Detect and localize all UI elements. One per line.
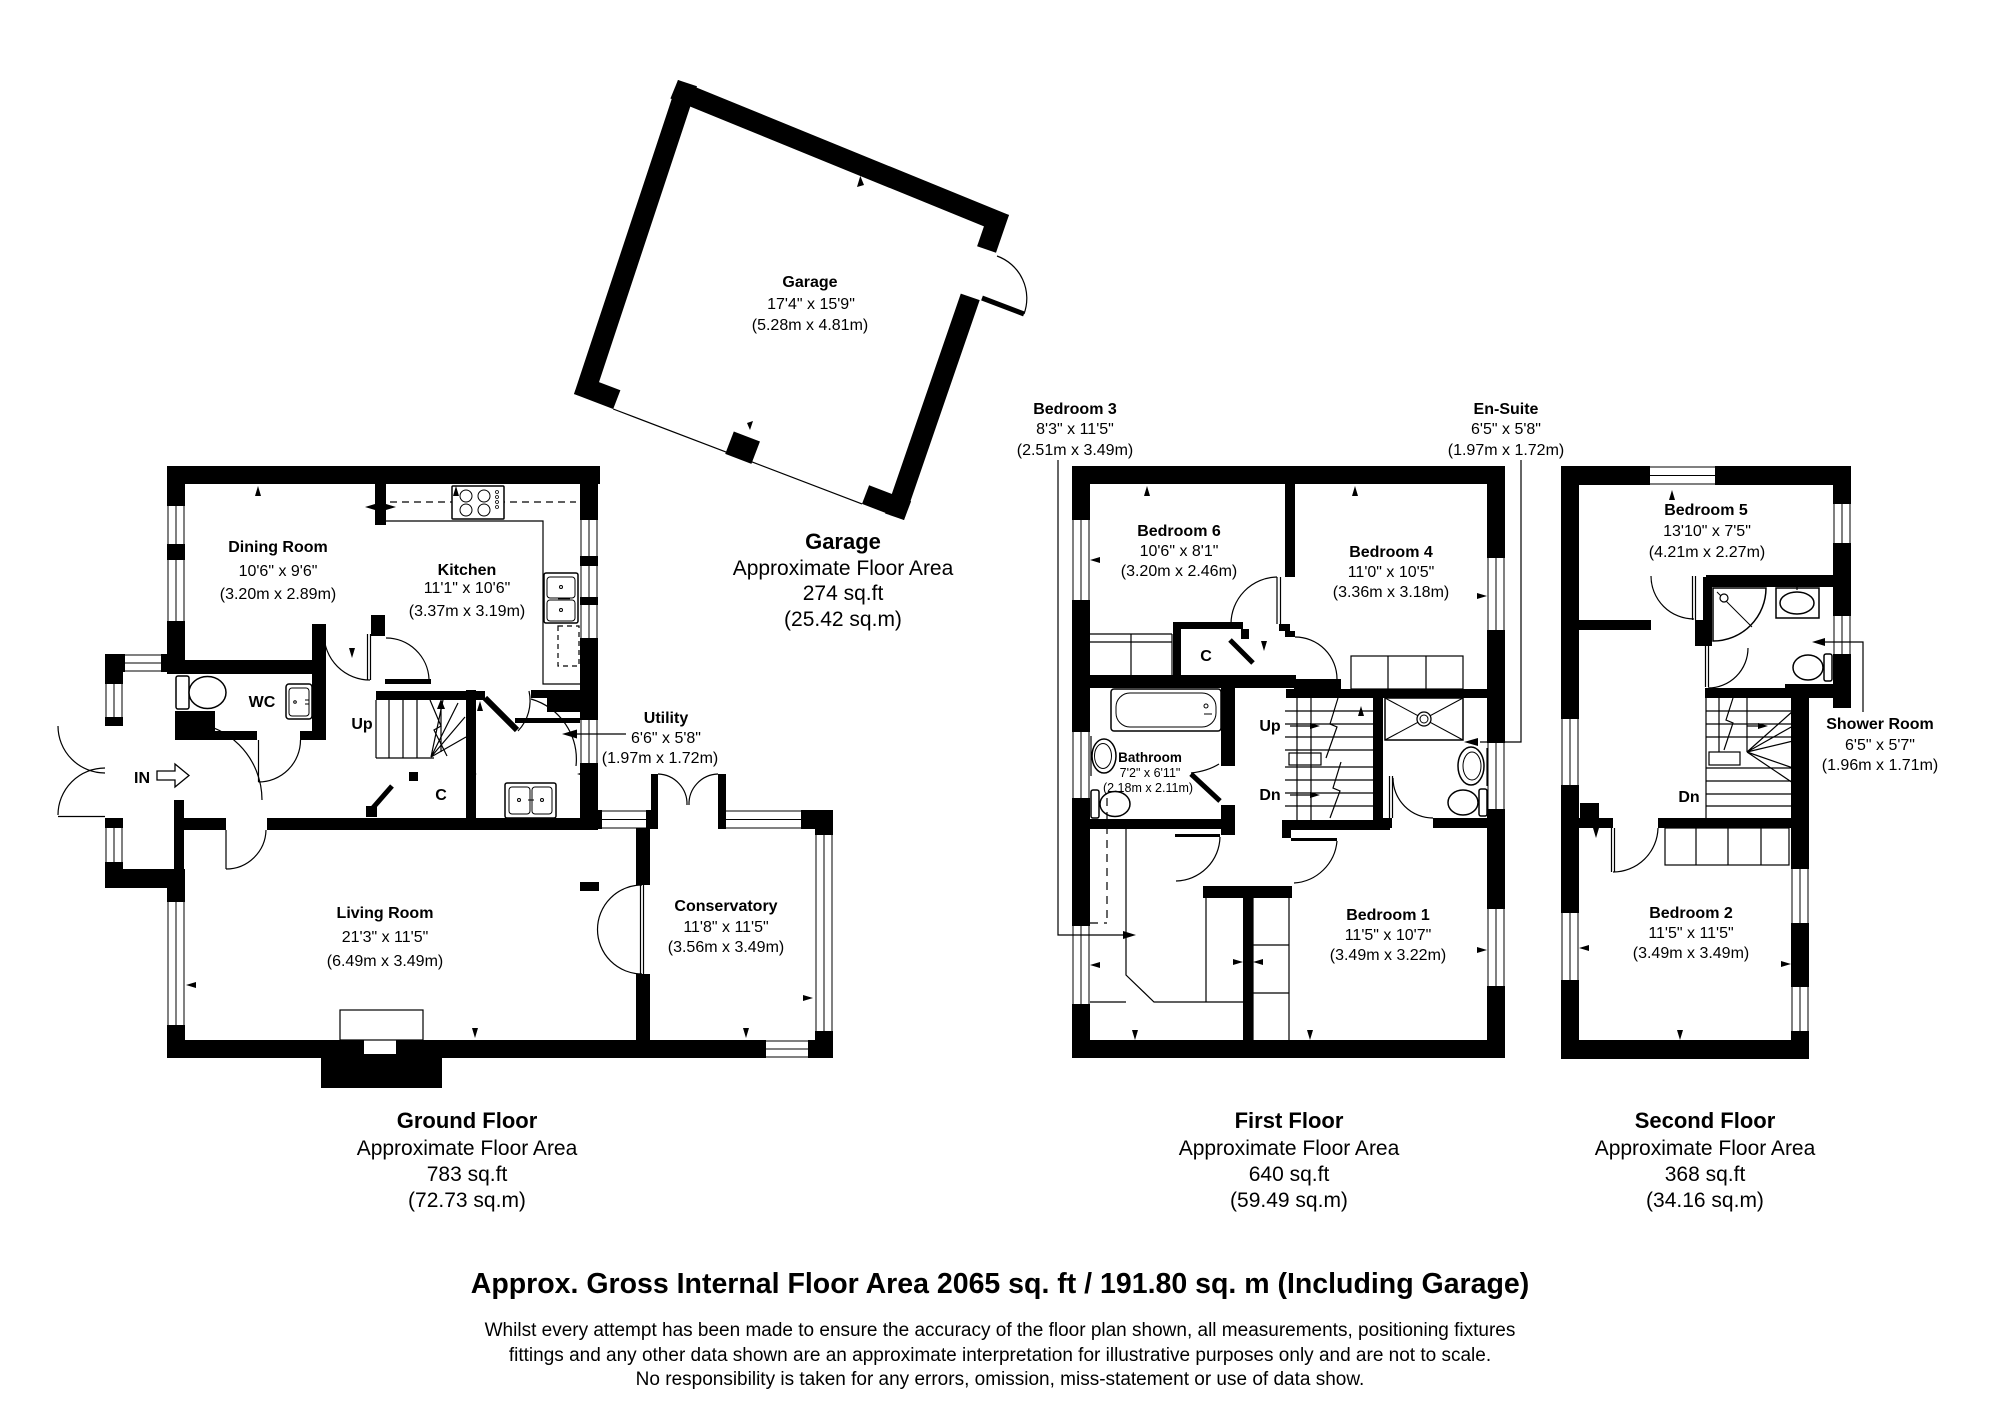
svg-text:(34.16 sq.m): (34.16 sq.m) <box>1646 1189 1764 1212</box>
svg-text:(6.49m x 3.49m): (6.49m x 3.49m) <box>327 953 443 970</box>
svg-text:(2.18m x 2.11m): (2.18m x 2.11m) <box>1103 781 1193 795</box>
svg-text:(1.97m x 1.72m): (1.97m x 1.72m) <box>1448 442 1564 459</box>
svg-text:(3.37m x 3.19m): (3.37m x 3.19m) <box>409 603 525 620</box>
svg-text:Dn: Dn <box>1259 787 1280 804</box>
svg-text:Approximate Floor Area: Approximate Floor Area <box>1179 1137 1400 1160</box>
svg-text:(3.49m x 3.22m): (3.49m x 3.22m) <box>1330 947 1446 964</box>
svg-text:Shower Room: Shower Room <box>1826 716 1934 733</box>
svg-text:17'4" x 15'9": 17'4" x 15'9" <box>767 296 855 313</box>
svg-text:(2.51m x 3.49m): (2.51m x 3.49m) <box>1017 442 1133 459</box>
svg-text:IN: IN <box>134 770 150 787</box>
svg-text:Approximate Floor Area: Approximate Floor Area <box>357 1137 578 1160</box>
svg-text:11'5" x 10'7": 11'5" x 10'7" <box>1345 927 1432 944</box>
svg-text:(3.56m x 3.49m): (3.56m x 3.49m) <box>668 939 784 956</box>
svg-text:Bedroom 3: Bedroom 3 <box>1033 401 1117 418</box>
svg-text:Utility: Utility <box>644 710 689 727</box>
svg-text:(25.42 sq.m): (25.42 sq.m) <box>784 608 902 631</box>
svg-text:Approx. Gross Internal Floor A: Approx. Gross Internal Floor Area 2065 s… <box>471 1268 1529 1300</box>
svg-text:Ground Floor: Ground Floor <box>397 1108 538 1133</box>
svg-text:(59.49 sq.m): (59.49 sq.m) <box>1230 1189 1348 1212</box>
svg-text:Up: Up <box>351 716 373 733</box>
svg-text:Approximate Floor Area: Approximate Floor Area <box>1595 1137 1816 1160</box>
svg-text:Second Floor: Second Floor <box>1635 1108 1776 1133</box>
svg-text:7'2" x 6'11": 7'2" x 6'11" <box>1120 766 1181 780</box>
svg-text:Bedroom 5: Bedroom 5 <box>1664 502 1748 519</box>
svg-text:Kitchen: Kitchen <box>438 562 497 579</box>
svg-text:Living Room: Living Room <box>337 905 434 922</box>
svg-text:11'8" x 11'5": 11'8" x 11'5" <box>683 919 768 936</box>
svg-text:21'3" x 11'5": 21'3" x 11'5" <box>342 929 429 946</box>
svg-text:Bedroom 1: Bedroom 1 <box>1346 907 1430 924</box>
svg-text:Bedroom 4: Bedroom 4 <box>1349 544 1433 561</box>
svg-text:(1.96m x 1.71m): (1.96m x 1.71m) <box>1822 757 1938 774</box>
svg-text:(3.36m x 3.18m): (3.36m x 3.18m) <box>1333 584 1449 601</box>
svg-text:C: C <box>1200 648 1212 665</box>
svg-text:368 sq.ft: 368 sq.ft <box>1665 1163 1746 1186</box>
svg-text:Whilst every attempt has been: Whilst every attempt has been made to en… <box>485 1320 1516 1341</box>
svg-text:(3.20m x 2.89m): (3.20m x 2.89m) <box>220 586 336 603</box>
svg-text:11'5" x 11'5": 11'5" x 11'5" <box>1648 925 1733 942</box>
svg-text:Dining Room: Dining Room <box>228 539 328 556</box>
svg-text:(4.21m x 2.27m): (4.21m x 2.27m) <box>1649 544 1765 561</box>
svg-text:6'5" x 5'7": 6'5" x 5'7" <box>1845 737 1915 754</box>
svg-text:Bathroom: Bathroom <box>1118 750 1182 765</box>
svg-text:640 sq.ft: 640 sq.ft <box>1249 1163 1330 1186</box>
svg-text:First Floor: First Floor <box>1235 1108 1344 1133</box>
svg-text:(3.20m x 2.46m): (3.20m x 2.46m) <box>1121 563 1237 580</box>
svg-text:Garage: Garage <box>782 274 837 291</box>
svg-text:Up: Up <box>1259 718 1281 735</box>
svg-text:11'0" x 10'5": 11'0" x 10'5" <box>1348 564 1435 581</box>
svg-text:Garage: Garage <box>805 529 881 554</box>
svg-text:WC: WC <box>249 694 276 711</box>
svg-text:C: C <box>435 787 447 804</box>
svg-text:(72.73 sq.m): (72.73 sq.m) <box>408 1189 526 1212</box>
svg-text:274 sq.ft: 274 sq.ft <box>803 582 884 605</box>
svg-text:6'6" x 5'8": 6'6" x 5'8" <box>631 730 701 747</box>
svg-text:fittings and any other data sh: fittings and any other data shown are an… <box>509 1345 1491 1366</box>
svg-text:Bedroom 6: Bedroom 6 <box>1137 523 1221 540</box>
svg-text:10'6" x 9'6": 10'6" x 9'6" <box>239 563 318 580</box>
svg-text:10'6" x 8'1": 10'6" x 8'1" <box>1140 543 1219 560</box>
svg-text:13'10" x 7'5": 13'10" x 7'5" <box>1663 523 1751 540</box>
svg-text:Bedroom 2: Bedroom 2 <box>1649 905 1733 922</box>
svg-text:(3.49m x 3.49m): (3.49m x 3.49m) <box>1633 945 1749 962</box>
svg-text:6'5" x 5'8": 6'5" x 5'8" <box>1471 421 1541 438</box>
svg-text:(1.97m x 1.72m): (1.97m x 1.72m) <box>602 750 718 767</box>
svg-text:(5.28m x 4.81m): (5.28m x 4.81m) <box>752 317 868 334</box>
svg-text:783 sq.ft: 783 sq.ft <box>427 1163 508 1186</box>
svg-text:11'1" x 10'6": 11'1" x 10'6" <box>424 580 511 597</box>
svg-text:Conservatory: Conservatory <box>674 898 777 915</box>
svg-text:Dn: Dn <box>1678 789 1699 806</box>
svg-text:8'3" x 11'5": 8'3" x 11'5" <box>1036 421 1114 438</box>
svg-text:No responsibility is taken for: No responsibility is taken for any error… <box>636 1369 1365 1390</box>
svg-text:En-Suite: En-Suite <box>1474 401 1539 418</box>
svg-text:Approximate Floor Area: Approximate Floor Area <box>733 557 954 580</box>
